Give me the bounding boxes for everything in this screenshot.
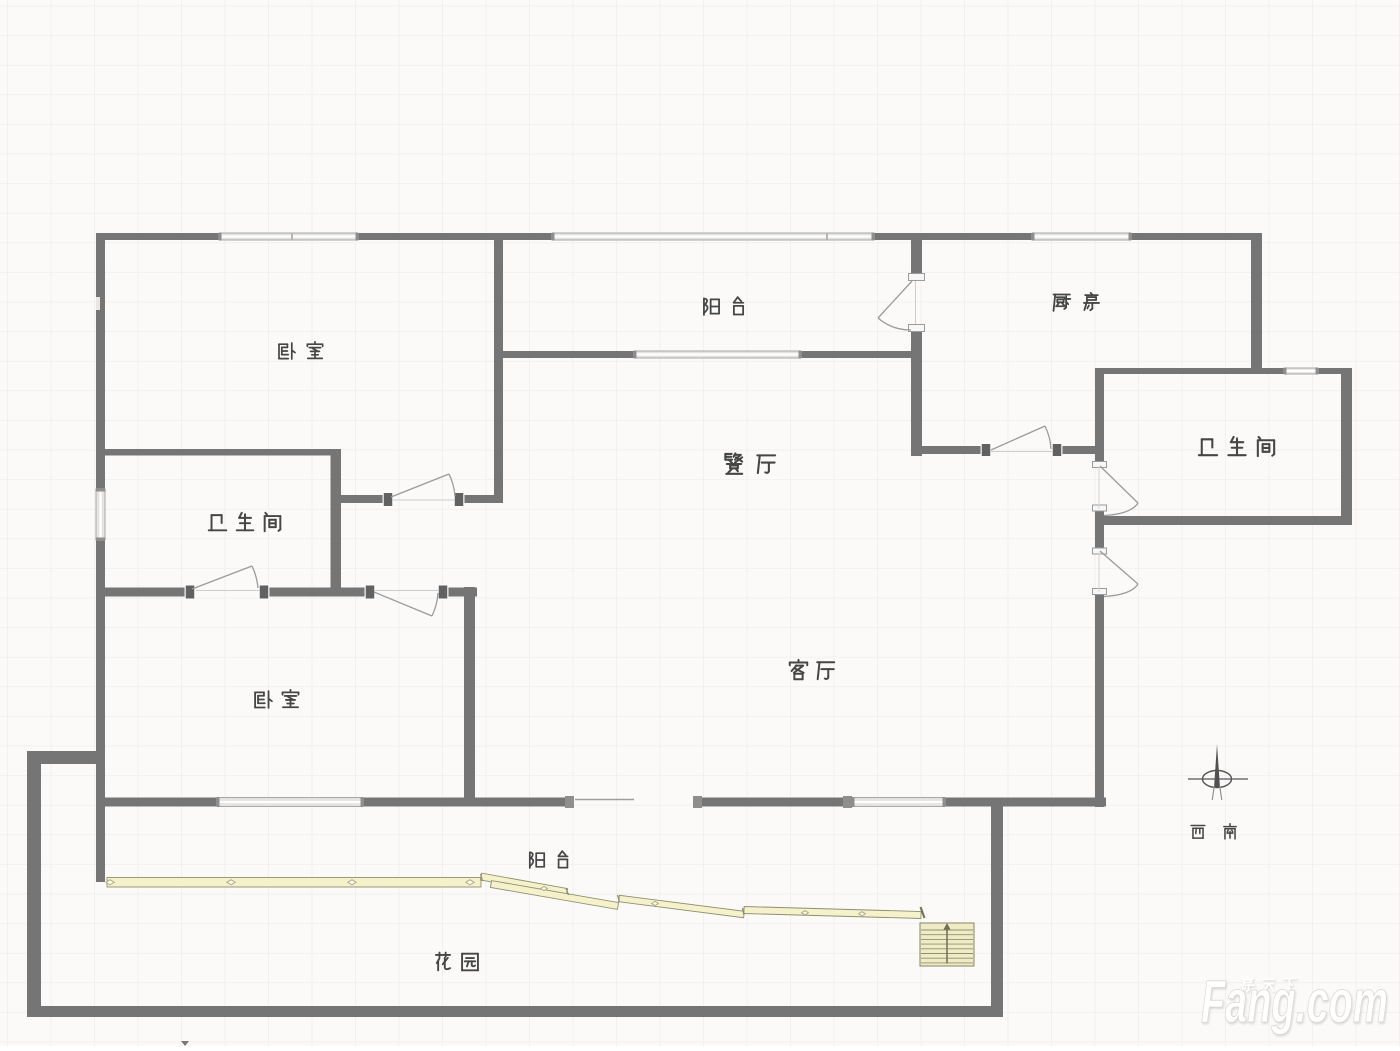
svg-text:Fang.com: Fang.com: [1201, 968, 1388, 1035]
